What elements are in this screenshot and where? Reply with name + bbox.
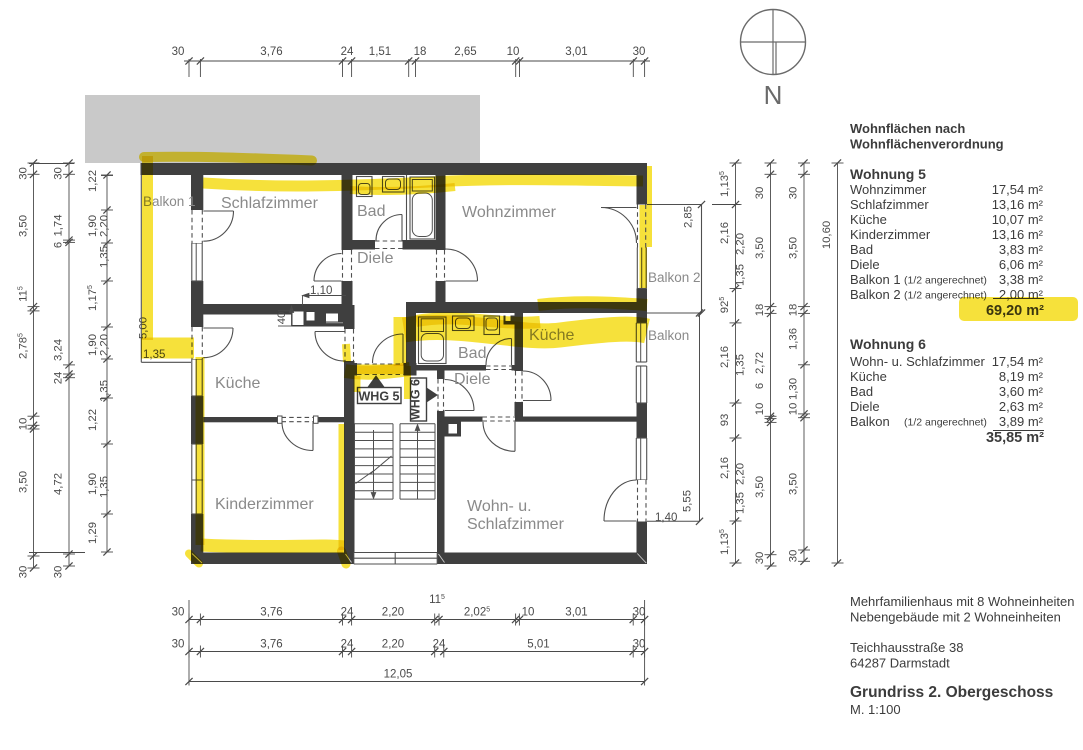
svg-text:4,72: 4,72 — [53, 473, 65, 495]
svg-text:3,76: 3,76 — [260, 46, 282, 58]
svg-text:30: 30 — [633, 639, 646, 651]
svg-text:Wohn- u. Schlafzimmer: Wohn- u. Schlafzimmer — [850, 354, 986, 369]
svg-text:3,76: 3,76 — [260, 639, 282, 651]
svg-text:24: 24 — [53, 372, 65, 385]
svg-text:Küche: Küche — [215, 375, 260, 392]
svg-text:Diele: Diele — [357, 250, 394, 267]
svg-text:Schlafzimmer: Schlafzimmer — [467, 516, 565, 533]
svg-text:12,05: 12,05 — [384, 669, 413, 681]
svg-text:3,01: 3,01 — [565, 46, 587, 58]
svg-text:1,35: 1,35 — [735, 354, 747, 376]
svg-text:2,20: 2,20 — [735, 233, 747, 255]
svg-text:Wohnung 5: Wohnung 5 — [850, 166, 926, 182]
svg-text:1,35: 1,35 — [99, 380, 111, 402]
svg-text:1,74: 1,74 — [53, 215, 65, 237]
svg-text:64287 Darmstadt: 64287 Darmstadt — [850, 656, 950, 671]
svg-text:10: 10 — [754, 403, 766, 416]
svg-text:1,90: 1,90 — [87, 215, 99, 237]
svg-text:3,50: 3,50 — [788, 237, 800, 259]
svg-text:(1/2 angerechnet): (1/2 angerechnet) — [904, 417, 987, 429]
svg-text:Balkon: Balkon — [648, 328, 689, 343]
svg-text:1,90: 1,90 — [87, 334, 99, 356]
svg-text:1,175: 1,175 — [87, 285, 99, 311]
svg-text:5,55: 5,55 — [682, 490, 694, 512]
svg-text:35,85 m²: 35,85 m² — [986, 430, 1044, 446]
svg-text:WHG 5: WHG 5 — [359, 390, 400, 404]
svg-text:2,20: 2,20 — [382, 639, 404, 651]
svg-text:Balkon: Balkon — [850, 414, 890, 429]
svg-text:2,785: 2,785 — [18, 333, 30, 359]
svg-text:Mehrfamilienhaus mit 8 Wohnein: Mehrfamilienhaus mit 8 Wohneinheiten — [850, 594, 1075, 609]
svg-text:3,50: 3,50 — [18, 215, 30, 237]
svg-text:30: 30 — [788, 550, 800, 563]
svg-text:8,19 m²: 8,19 m² — [999, 369, 1044, 384]
svg-text:10: 10 — [522, 607, 535, 619]
svg-text:1,36: 1,36 — [788, 328, 800, 350]
svg-text:115: 115 — [429, 594, 445, 606]
svg-text:1,40: 1,40 — [655, 512, 677, 524]
svg-text:6: 6 — [53, 242, 65, 248]
svg-text:Diele: Diele — [454, 371, 491, 388]
svg-text:30: 30 — [633, 607, 646, 619]
svg-text:3,50: 3,50 — [788, 473, 800, 495]
svg-text:17,54 m²: 17,54 m² — [992, 182, 1044, 197]
svg-text:M. 1:100: M. 1:100 — [850, 702, 901, 717]
svg-text:Balkon 1: Balkon 1 — [850, 272, 901, 287]
svg-text:13,16 m²: 13,16 m² — [992, 227, 1044, 242]
svg-text:18: 18 — [414, 46, 427, 58]
svg-text:2,20: 2,20 — [735, 463, 747, 485]
svg-text:1,35: 1,35 — [735, 264, 747, 286]
svg-text:Wohnzimmer: Wohnzimmer — [850, 182, 927, 197]
svg-text:3,50: 3,50 — [18, 471, 30, 493]
svg-text:2,20: 2,20 — [99, 334, 111, 356]
svg-text:Diele: Diele — [850, 399, 880, 414]
svg-text:30: 30 — [53, 167, 65, 180]
svg-text:18: 18 — [788, 304, 800, 317]
svg-text:3,50: 3,50 — [754, 476, 766, 498]
svg-text:Diele: Diele — [850, 257, 880, 272]
svg-text:30: 30 — [18, 566, 30, 579]
svg-text:24: 24 — [433, 639, 446, 651]
svg-text:(1/2 angerechnet): (1/2 angerechnet) — [904, 275, 987, 287]
svg-text:3,89 m²: 3,89 m² — [999, 414, 1044, 429]
svg-text:N: N — [764, 80, 783, 110]
svg-text:Bad: Bad — [850, 384, 873, 399]
svg-text:Nebengebäude mit 2 Wohneinheit: Nebengebäude mit 2 Wohneinheiten — [850, 610, 1061, 625]
svg-text:1,35: 1,35 — [735, 492, 747, 514]
svg-text:2,63 m²: 2,63 m² — [999, 399, 1044, 414]
svg-text:30: 30 — [18, 167, 30, 180]
svg-text:2,16: 2,16 — [719, 346, 731, 368]
svg-text:Grundriss 2. Obergeschoss: Grundriss 2. Obergeschoss — [850, 684, 1053, 701]
svg-text:2,85: 2,85 — [683, 206, 695, 228]
svg-text:1,22: 1,22 — [87, 170, 99, 192]
svg-text:1,51: 1,51 — [369, 46, 391, 58]
svg-text:1,135: 1,135 — [719, 529, 731, 555]
svg-text:3,83 m²: 3,83 m² — [999, 242, 1044, 257]
svg-text:6,06 m²: 6,06 m² — [999, 257, 1044, 272]
svg-text:10,07 m²: 10,07 m² — [992, 212, 1044, 227]
svg-text:30: 30 — [633, 46, 646, 58]
svg-text:Kinderzimmer: Kinderzimmer — [215, 496, 314, 513]
svg-text:2,025: 2,025 — [464, 607, 490, 619]
svg-text:Teichhausstraße 38: Teichhausstraße 38 — [850, 640, 963, 655]
svg-text:115: 115 — [18, 286, 30, 302]
svg-text:Wohnzimmer: Wohnzimmer — [462, 204, 557, 221]
svg-text:13,16 m²: 13,16 m² — [992, 197, 1044, 212]
svg-text:30: 30 — [172, 607, 185, 619]
svg-text:Balkon 2: Balkon 2 — [850, 287, 901, 302]
svg-text:10,60: 10,60 — [821, 221, 833, 249]
svg-text:1,30: 1,30 — [788, 378, 800, 400]
svg-text:5,01: 5,01 — [527, 639, 549, 651]
svg-text:3,01: 3,01 — [565, 607, 587, 619]
svg-text:1,29: 1,29 — [87, 522, 99, 544]
svg-text:1,22: 1,22 — [87, 409, 99, 431]
svg-text:2,16: 2,16 — [719, 222, 731, 244]
svg-text:Kinderzimmer: Kinderzimmer — [850, 227, 931, 242]
svg-text:24: 24 — [341, 46, 354, 58]
svg-text:2,72: 2,72 — [754, 352, 766, 374]
svg-text:Balkon 2: Balkon 2 — [648, 270, 701, 285]
svg-text:3,60 m²: 3,60 m² — [999, 384, 1044, 399]
svg-text:1,35: 1,35 — [99, 246, 111, 268]
svg-text:30: 30 — [788, 187, 800, 200]
svg-text:30: 30 — [754, 552, 766, 565]
svg-text:925: 925 — [719, 297, 731, 314]
svg-text:Bad: Bad — [458, 345, 486, 362]
svg-text:10: 10 — [507, 46, 520, 58]
svg-text:17,54 m²: 17,54 m² — [992, 354, 1044, 369]
svg-text:93: 93 — [719, 414, 731, 427]
svg-text:30: 30 — [754, 187, 766, 200]
svg-text:24: 24 — [341, 639, 354, 651]
svg-text:Wohn- u.: Wohn- u. — [467, 498, 532, 515]
svg-text:3,50: 3,50 — [754, 237, 766, 259]
svg-text:3,76: 3,76 — [260, 607, 282, 619]
svg-text:Bad: Bad — [357, 203, 385, 220]
svg-text:Wohnung 6: Wohnung 6 — [850, 336, 926, 352]
svg-text:Küche: Küche — [850, 212, 887, 227]
svg-text:18: 18 — [754, 304, 766, 317]
svg-text:Schlafzimmer: Schlafzimmer — [850, 197, 929, 212]
svg-text:30: 30 — [172, 46, 185, 58]
svg-text:2,65: 2,65 — [454, 46, 476, 58]
svg-text:30: 30 — [53, 566, 65, 579]
svg-text:3,38 m²: 3,38 m² — [999, 272, 1044, 287]
svg-text:1,135: 1,135 — [719, 171, 731, 197]
svg-text:30: 30 — [172, 639, 185, 651]
svg-text:10: 10 — [788, 403, 800, 416]
svg-text:2,20: 2,20 — [382, 607, 404, 619]
svg-text:2,16: 2,16 — [719, 457, 731, 479]
svg-text:1,35: 1,35 — [99, 476, 111, 498]
svg-text:10: 10 — [18, 418, 30, 431]
svg-text:1,90: 1,90 — [87, 473, 99, 495]
svg-text:Schlafzimmer: Schlafzimmer — [221, 195, 319, 212]
svg-text:6: 6 — [754, 383, 766, 389]
svg-text:Wohnflächenverordnung: Wohnflächenverordnung — [850, 137, 1004, 152]
svg-text:40: 40 — [276, 312, 288, 325]
svg-text:Wohnflächen nach: Wohnflächen nach — [850, 121, 965, 136]
svg-text:Bad: Bad — [850, 242, 873, 257]
svg-text:3,24: 3,24 — [53, 339, 65, 361]
svg-text:Küche: Küche — [850, 369, 887, 384]
svg-text:2,20: 2,20 — [99, 215, 111, 237]
svg-text:24: 24 — [341, 607, 354, 619]
